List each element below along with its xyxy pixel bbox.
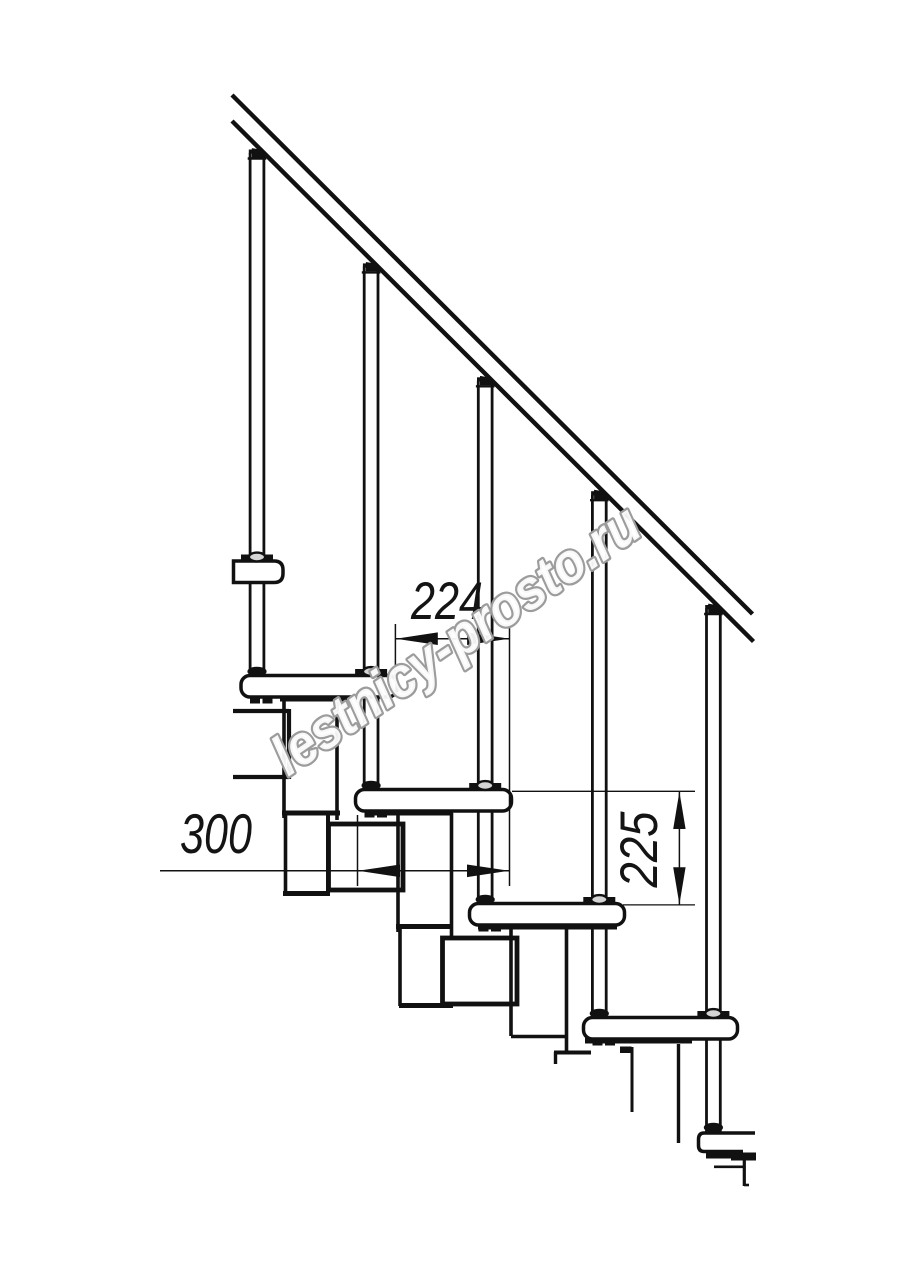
svg-text:300: 300 [180, 802, 252, 865]
svg-text:225: 225 [610, 811, 669, 888]
